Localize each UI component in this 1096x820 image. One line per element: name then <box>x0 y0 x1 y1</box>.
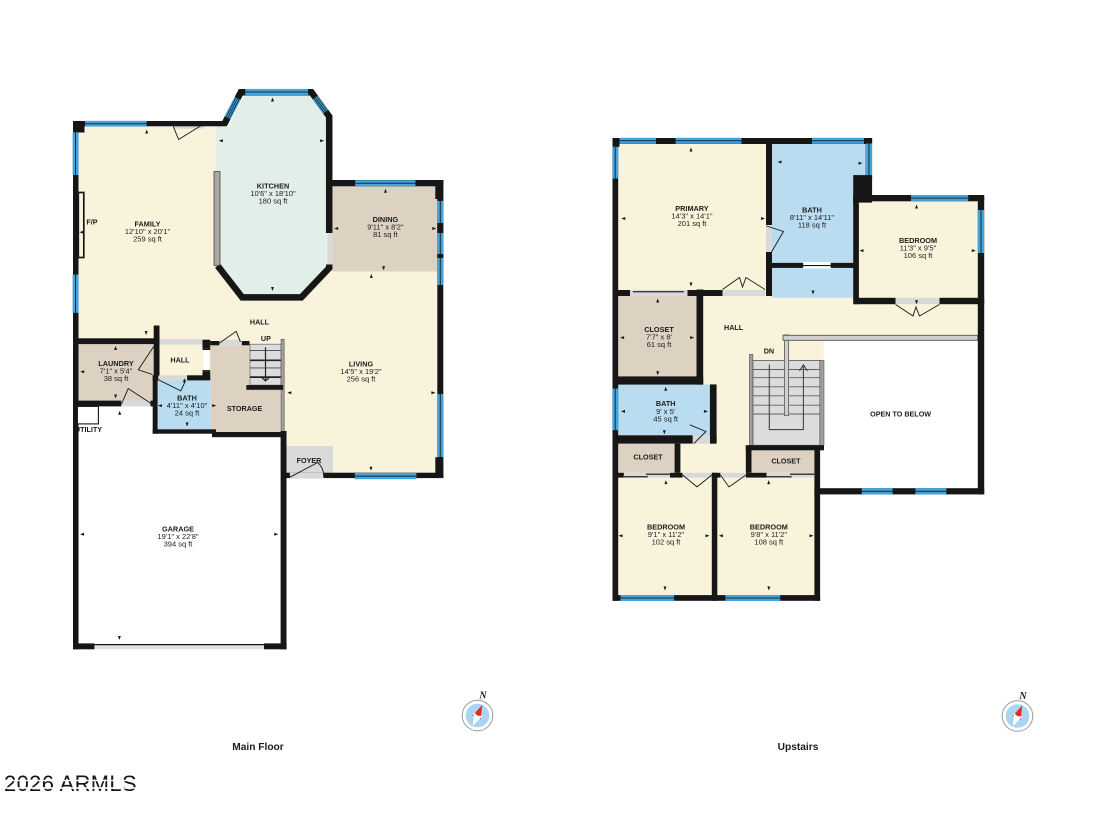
svg-text:Main Floor: Main Floor <box>232 742 284 753</box>
svg-text:HALL: HALL <box>250 318 270 327</box>
svg-text:256 sq ft: 256 sq ft <box>347 375 377 384</box>
svg-text:HALL: HALL <box>724 323 744 332</box>
svg-text:106 sq ft: 106 sq ft <box>904 251 934 260</box>
svg-text:N: N <box>1018 691 1027 702</box>
svg-text:45 sq ft: 45 sq ft <box>653 414 679 423</box>
svg-text:118 sq ft: 118 sq ft <box>798 220 827 229</box>
svg-text:N: N <box>478 691 487 702</box>
svg-text:F/P: F/P <box>86 218 97 227</box>
svg-text:UTILITY: UTILITY <box>75 425 102 434</box>
svg-text:OPEN TO BELOW: OPEN TO BELOW <box>870 410 931 419</box>
svg-text:CLOSET: CLOSET <box>771 457 801 466</box>
svg-text:259 sq ft: 259 sq ft <box>133 235 163 244</box>
svg-text:UP: UP <box>261 334 271 343</box>
svg-text:Upstairs: Upstairs <box>778 742 819 753</box>
svg-text:38 sq ft: 38 sq ft <box>104 374 130 383</box>
svg-text:24 sq ft: 24 sq ft <box>175 408 201 417</box>
svg-text:DN: DN <box>764 347 774 356</box>
svg-text:180 sq ft: 180 sq ft <box>259 197 289 206</box>
svg-text:2026 ARMLS: 2026 ARMLS <box>4 771 137 796</box>
svg-text:61 sq ft: 61 sq ft <box>647 340 673 349</box>
svg-text:FOYER: FOYER <box>297 456 323 465</box>
svg-text:102 sq ft: 102 sq ft <box>652 538 682 547</box>
svg-text:81 sq ft: 81 sq ft <box>373 230 399 239</box>
svg-text:394 sq ft: 394 sq ft <box>164 540 194 549</box>
svg-text:201 sq ft: 201 sq ft <box>678 219 708 228</box>
svg-text:HALL: HALL <box>170 355 190 364</box>
svg-text:108 sq ft: 108 sq ft <box>754 538 784 547</box>
svg-text:STORAGE: STORAGE <box>227 404 263 413</box>
svg-text:CLOSET: CLOSET <box>633 453 663 462</box>
